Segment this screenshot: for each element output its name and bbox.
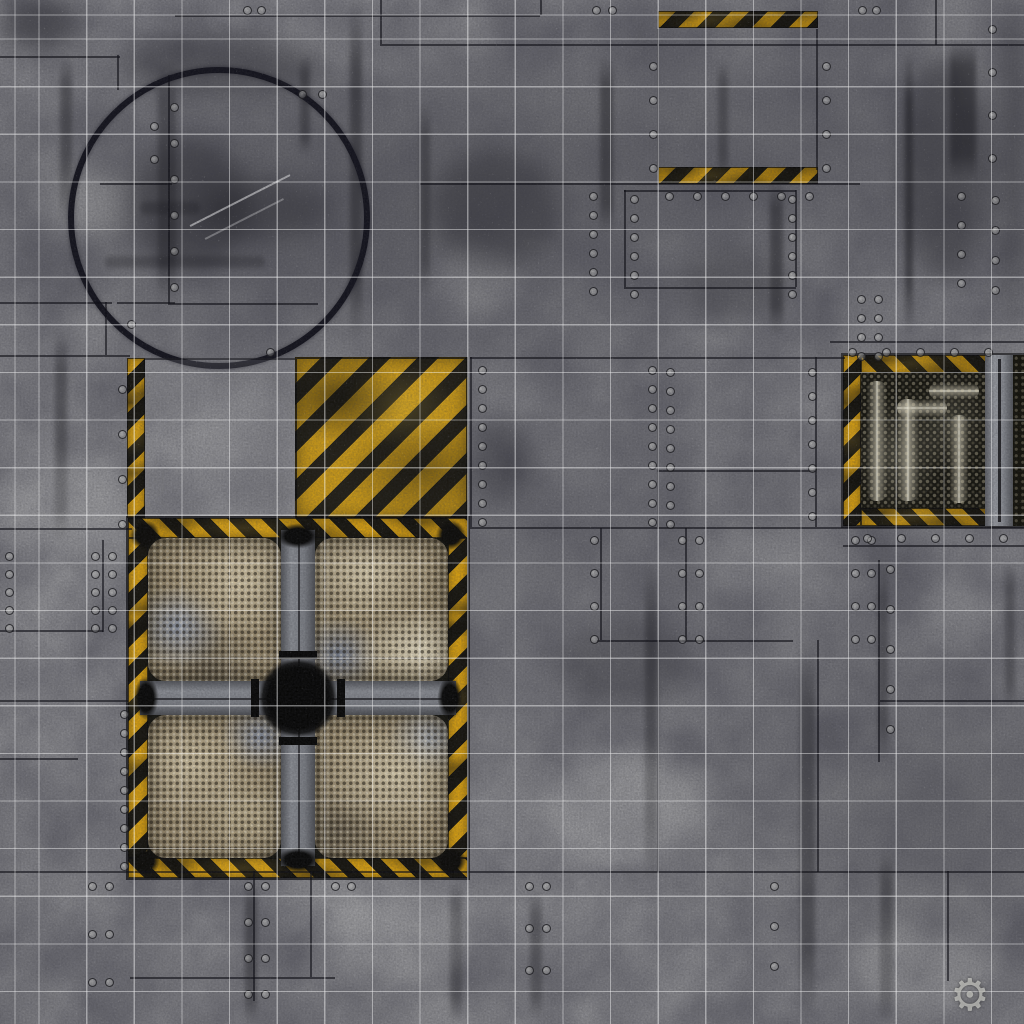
battle-mat: ⚙ xyxy=(0,0,1024,1024)
gear-logo-watermark: ⚙ xyxy=(950,974,989,1018)
speckle-highlight-layer xyxy=(0,0,1024,1024)
